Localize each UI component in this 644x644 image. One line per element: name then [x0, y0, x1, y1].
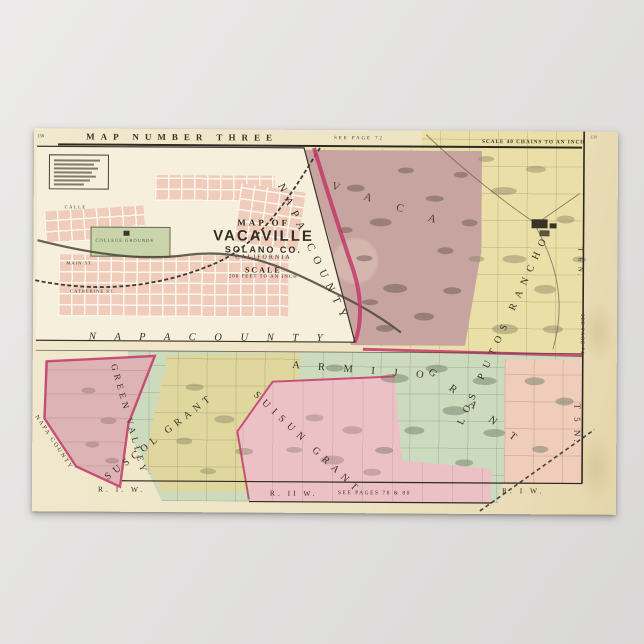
label-napa-county-bottom: N A P A C O U N T Y [89, 332, 327, 344]
label-see-pages-bottom: SEE PAGES 78 & 80 [338, 490, 411, 496]
label-t6n: T 6 N. [576, 248, 584, 278]
see-page-top: SEE PAGE 72 [334, 136, 384, 141]
label-t5n: T 5 N. [572, 404, 582, 445]
scale-top-right: SCALE 40 CHAINS TO AN INCH [482, 139, 585, 146]
page-number-left: 138 [37, 133, 44, 138]
page-number-right: 139 [590, 135, 597, 140]
paper-stain [581, 302, 615, 362]
label-r1w-right: R. I W. [502, 486, 544, 495]
sheet-title: MAP NUMBER THREE [86, 132, 278, 143]
label-r2w: R. II W. [270, 489, 318, 498]
map-sheet: COLLEGE GROUNDS CALLE MAIN ST. CATHERINE… [32, 128, 618, 515]
label-r1w-left: R. I. W. [98, 485, 145, 494]
